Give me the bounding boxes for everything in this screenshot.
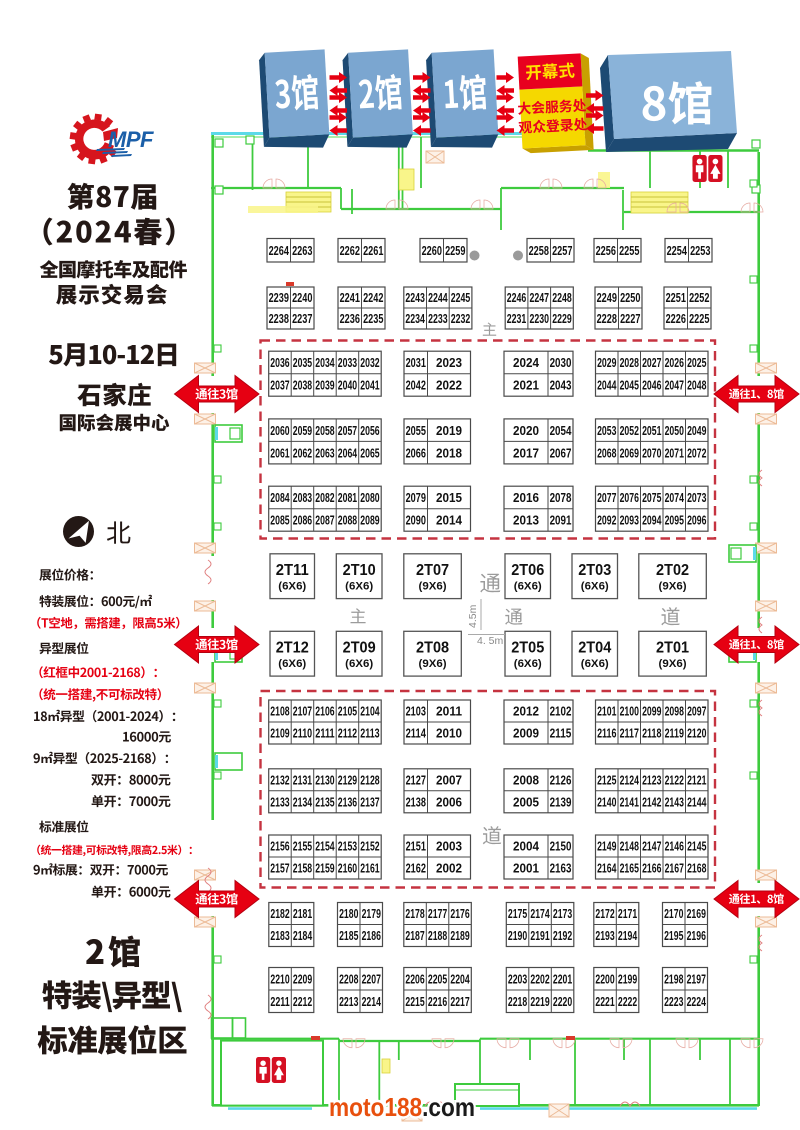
svg-text:2046: 2046: [642, 378, 661, 393]
svg-text:2025: 2025: [687, 355, 706, 370]
svg-text:2136: 2136: [338, 794, 357, 809]
svg-text:2057: 2057: [338, 423, 357, 438]
svg-text:2T01: 2T01: [656, 639, 689, 656]
svg-text:2163: 2163: [550, 861, 572, 876]
svg-text:2012: 2012: [513, 704, 539, 719]
svg-text:2139: 2139: [550, 794, 572, 809]
svg-text:2067: 2067: [550, 445, 572, 460]
svg-text:2179: 2179: [362, 906, 381, 921]
svg-text:2189: 2189: [450, 928, 469, 943]
svg-text:2190: 2190: [508, 928, 527, 943]
svg-text:2051: 2051: [642, 423, 661, 438]
svg-text:2132: 2132: [270, 772, 289, 787]
svg-text:2214: 2214: [362, 994, 382, 1009]
svg-text:2047: 2047: [665, 378, 684, 393]
svg-text:2027: 2027: [642, 355, 661, 370]
svg-text:2019: 2019: [436, 423, 462, 438]
svg-text:2213: 2213: [339, 994, 358, 1009]
svg-text:2261: 2261: [363, 243, 383, 258]
svg-text:2154: 2154: [315, 839, 335, 854]
svg-text:2253: 2253: [690, 243, 710, 258]
svg-text:2184: 2184: [293, 928, 313, 943]
svg-text:2076: 2076: [620, 490, 639, 505]
svg-text:2020: 2020: [513, 423, 539, 438]
svg-text:2106: 2106: [315, 704, 334, 719]
svg-text:2172: 2172: [595, 906, 614, 921]
svg-text:2185: 2185: [339, 928, 358, 943]
svg-text:2165: 2165: [620, 861, 639, 876]
svg-text:2181: 2181: [293, 906, 312, 921]
svg-text:2209: 2209: [293, 971, 312, 986]
svg-text:(6X6): (6X6): [278, 580, 306, 592]
svg-text:2159: 2159: [315, 861, 334, 876]
svg-text:2029: 2029: [597, 355, 616, 370]
svg-text:2237: 2237: [292, 311, 312, 326]
svg-text:2236: 2236: [340, 311, 360, 326]
svg-text:2238: 2238: [269, 311, 289, 326]
svg-text:2170: 2170: [664, 906, 683, 921]
svg-text:2004: 2004: [513, 839, 540, 854]
svg-text:2182: 2182: [270, 906, 289, 921]
svg-text:2088: 2088: [338, 513, 357, 528]
svg-text:2065: 2065: [360, 445, 379, 460]
svg-text:2131: 2131: [293, 772, 312, 787]
svg-text:2198: 2198: [664, 971, 683, 986]
svg-text:2224: 2224: [687, 994, 707, 1009]
svg-text:2194: 2194: [618, 928, 638, 943]
svg-text:2112: 2112: [338, 726, 357, 741]
svg-text:(9X6): (9X6): [659, 580, 687, 592]
svg-text:2147: 2147: [642, 839, 661, 854]
svg-text:2031: 2031: [406, 355, 426, 370]
svg-text:2098: 2098: [665, 704, 684, 719]
svg-text:2100: 2100: [620, 704, 639, 719]
svg-text:2059: 2059: [293, 423, 312, 438]
svg-text:2251: 2251: [666, 290, 686, 305]
svg-text:2114: 2114: [406, 726, 427, 741]
svg-text:2215: 2215: [405, 994, 424, 1009]
svg-text:2119: 2119: [665, 726, 684, 741]
svg-text:2105: 2105: [338, 704, 357, 719]
svg-text:2137: 2137: [360, 794, 379, 809]
svg-text:2247: 2247: [530, 290, 550, 305]
svg-text:2042: 2042: [406, 378, 426, 393]
svg-text:2196: 2196: [687, 928, 706, 943]
svg-text:2075: 2075: [642, 490, 661, 505]
svg-text:2063: 2063: [315, 445, 334, 460]
svg-text:2038: 2038: [293, 378, 312, 393]
svg-text:2034: 2034: [315, 355, 335, 370]
svg-text:2064: 2064: [338, 445, 358, 460]
svg-text:(6X6): (6X6): [345, 580, 373, 592]
svg-text:2094: 2094: [642, 513, 662, 528]
svg-text:2086: 2086: [293, 513, 312, 528]
svg-text:2157: 2157: [270, 861, 289, 876]
svg-text:2053: 2053: [597, 423, 616, 438]
svg-text:2011: 2011: [436, 704, 462, 719]
svg-text:2143: 2143: [665, 794, 684, 809]
svg-text:2111: 2111: [315, 726, 334, 741]
svg-text:2161: 2161: [360, 861, 379, 876]
svg-text:2264: 2264: [269, 243, 290, 258]
svg-text:2187: 2187: [405, 928, 424, 943]
svg-text:2013: 2013: [513, 513, 539, 528]
svg-text:2135: 2135: [315, 794, 334, 809]
svg-text:2102: 2102: [550, 704, 572, 719]
svg-text:2245: 2245: [451, 290, 471, 305]
svg-text:2263: 2263: [292, 243, 312, 258]
svg-text:2201: 2201: [553, 971, 572, 986]
svg-text:2040: 2040: [338, 378, 357, 393]
svg-text:2001: 2001: [513, 861, 539, 876]
svg-text:2207: 2207: [362, 971, 381, 986]
svg-text:2133: 2133: [270, 794, 289, 809]
svg-text:2256: 2256: [596, 243, 616, 258]
svg-text:2126: 2126: [550, 772, 572, 787]
svg-text:(9X6): (9X6): [659, 658, 687, 670]
svg-text:2087: 2087: [315, 513, 334, 528]
svg-text:2235: 2235: [363, 311, 383, 326]
svg-text:2041: 2041: [360, 378, 379, 393]
svg-text:2227: 2227: [620, 311, 640, 326]
svg-text:2175: 2175: [508, 906, 527, 921]
svg-text:2255: 2255: [619, 243, 639, 258]
svg-text:2050: 2050: [665, 423, 684, 438]
svg-text:2204: 2204: [450, 971, 470, 986]
svg-text:2123: 2123: [642, 772, 661, 787]
svg-text:2090: 2090: [406, 513, 426, 528]
svg-text:2206: 2206: [405, 971, 424, 986]
svg-text:2118: 2118: [642, 726, 661, 741]
svg-text:2068: 2068: [597, 445, 616, 460]
svg-text:2T10: 2T10: [343, 562, 376, 579]
svg-text:2008: 2008: [513, 772, 539, 787]
svg-text:2151: 2151: [406, 839, 426, 854]
svg-text:2200: 2200: [595, 971, 614, 986]
svg-text:2216: 2216: [428, 994, 447, 1009]
svg-text:2162: 2162: [406, 861, 426, 876]
svg-text:2120: 2120: [687, 726, 706, 741]
svg-text:2142: 2142: [642, 794, 661, 809]
svg-text:2022: 2022: [436, 378, 462, 393]
svg-text:MPF: MPF: [108, 127, 154, 152]
svg-text:2246: 2246: [507, 290, 527, 305]
svg-text:2073: 2073: [687, 490, 706, 505]
svg-text:2228: 2228: [597, 311, 617, 326]
svg-text:2158: 2158: [293, 861, 312, 876]
svg-text:2010: 2010: [436, 726, 462, 741]
svg-text:2097: 2097: [687, 704, 706, 719]
svg-text:2259: 2259: [445, 243, 465, 258]
svg-text:2128: 2128: [360, 772, 379, 787]
svg-text:2155: 2155: [293, 839, 312, 854]
svg-text:2222: 2222: [618, 994, 637, 1009]
svg-text:2037: 2037: [270, 378, 289, 393]
svg-text:(9X6): (9X6): [419, 580, 447, 592]
svg-text:2262: 2262: [340, 243, 360, 258]
svg-text:2T08: 2T08: [416, 639, 449, 656]
svg-text:2109: 2109: [270, 726, 289, 741]
svg-text:(6X6): (6X6): [278, 658, 306, 670]
svg-text:2056: 2056: [360, 423, 379, 438]
svg-text:2152: 2152: [360, 839, 379, 854]
svg-text:2069: 2069: [620, 445, 639, 460]
svg-text:2083: 2083: [293, 490, 312, 505]
svg-text:2205: 2205: [428, 971, 447, 986]
svg-text:2178: 2178: [405, 906, 424, 921]
svg-text:2169: 2169: [687, 906, 706, 921]
svg-text:2146: 2146: [665, 839, 684, 854]
svg-text:2177: 2177: [428, 906, 447, 921]
svg-text:2234: 2234: [405, 311, 425, 326]
svg-text:2230: 2230: [530, 311, 550, 326]
svg-text:2052: 2052: [620, 423, 639, 438]
svg-text:2049: 2049: [687, 423, 706, 438]
svg-text:2171: 2171: [618, 906, 637, 921]
svg-text:2009: 2009: [513, 726, 539, 741]
svg-text:2002: 2002: [436, 861, 462, 876]
svg-text:2243: 2243: [405, 290, 425, 305]
svg-text:2244: 2244: [428, 290, 448, 305]
svg-text:2125: 2125: [597, 772, 616, 787]
svg-text:2134: 2134: [293, 794, 313, 809]
svg-text:2208: 2208: [339, 971, 358, 986]
svg-text:2249: 2249: [597, 290, 617, 305]
svg-text:2028: 2028: [620, 355, 639, 370]
svg-text:2014: 2014: [436, 513, 463, 528]
svg-text:2024: 2024: [513, 355, 540, 370]
svg-text:2084: 2084: [270, 490, 290, 505]
svg-text:2174: 2174: [530, 906, 550, 921]
svg-text:2223: 2223: [664, 994, 683, 1009]
svg-text:2085: 2085: [270, 513, 289, 528]
svg-text:2032: 2032: [360, 355, 379, 370]
svg-text:2016: 2016: [513, 490, 539, 505]
svg-text:2166: 2166: [642, 861, 661, 876]
svg-text:2129: 2129: [338, 772, 357, 787]
svg-text:2033: 2033: [338, 355, 357, 370]
svg-text:2248: 2248: [552, 290, 572, 305]
svg-text:2225: 2225: [689, 311, 709, 326]
svg-text:2186: 2186: [362, 928, 381, 943]
svg-text:2082: 2082: [315, 490, 334, 505]
svg-text:2108: 2108: [270, 704, 289, 719]
svg-text:2099: 2099: [642, 704, 661, 719]
svg-text:2203: 2203: [508, 971, 527, 986]
svg-text:2239: 2239: [269, 290, 289, 305]
svg-text:2095: 2095: [665, 513, 684, 528]
svg-text:2197: 2197: [687, 971, 706, 986]
svg-text:2093: 2093: [620, 513, 639, 528]
svg-text:2195: 2195: [664, 928, 683, 943]
svg-text:2T07: 2T07: [416, 562, 449, 579]
svg-text:2218: 2218: [508, 994, 527, 1009]
svg-text:2007: 2007: [436, 772, 462, 787]
svg-text:2T03: 2T03: [578, 562, 611, 579]
svg-text:2231: 2231: [507, 311, 527, 326]
svg-text:2116: 2116: [597, 726, 616, 741]
svg-text:2T02: 2T02: [656, 562, 689, 579]
svg-text:2168: 2168: [687, 861, 706, 876]
svg-text:2121: 2121: [687, 772, 706, 787]
svg-text:2035: 2035: [293, 355, 312, 370]
svg-text:2021: 2021: [513, 378, 539, 393]
svg-text:2140: 2140: [597, 794, 616, 809]
svg-text:4. 5m: 4. 5m: [477, 635, 504, 647]
svg-text:2260: 2260: [422, 243, 442, 258]
svg-text:2149: 2149: [597, 839, 616, 854]
svg-text:2229: 2229: [552, 311, 572, 326]
svg-text:2113: 2113: [360, 726, 379, 741]
svg-text:2006: 2006: [436, 794, 462, 809]
svg-text:2167: 2167: [665, 861, 684, 876]
svg-text:2210: 2210: [270, 971, 289, 986]
svg-text:2T11: 2T11: [276, 562, 309, 579]
svg-text:2060: 2060: [270, 423, 289, 438]
svg-text:2221: 2221: [595, 994, 614, 1009]
svg-text:2074: 2074: [665, 490, 685, 505]
svg-text:2156: 2156: [270, 839, 289, 854]
svg-text:2070: 2070: [642, 445, 661, 460]
svg-text:2188: 2188: [428, 928, 447, 943]
svg-text:2015: 2015: [436, 490, 462, 505]
svg-text:2141: 2141: [620, 794, 639, 809]
svg-text:2219: 2219: [530, 994, 549, 1009]
svg-text:2T09: 2T09: [343, 639, 376, 656]
svg-text:2039: 2039: [315, 378, 334, 393]
svg-text:(9X6): (9X6): [419, 658, 447, 670]
svg-text:2242: 2242: [363, 290, 383, 305]
svg-text:2252: 2252: [689, 290, 709, 305]
svg-text:2003: 2003: [436, 839, 462, 854]
svg-text:2193: 2193: [595, 928, 614, 943]
svg-text:2023: 2023: [436, 355, 462, 370]
svg-text:2258: 2258: [529, 243, 549, 258]
svg-text:2081: 2081: [338, 490, 357, 505]
svg-text:2211: 2211: [270, 994, 289, 1009]
svg-text:(6X6): (6X6): [514, 658, 542, 670]
svg-text:2115: 2115: [550, 726, 572, 741]
svg-text:2107: 2107: [293, 704, 312, 719]
svg-text:2T12: 2T12: [276, 639, 309, 656]
svg-text:2173: 2173: [553, 906, 572, 921]
svg-text:2036: 2036: [270, 355, 289, 370]
svg-text:2212: 2212: [293, 994, 312, 1009]
svg-text:2077: 2077: [597, 490, 616, 505]
svg-text:2250: 2250: [620, 290, 640, 305]
svg-text:2164: 2164: [597, 861, 617, 876]
svg-text:2150: 2150: [550, 839, 572, 854]
svg-text:2096: 2096: [687, 513, 706, 528]
svg-text:2071: 2071: [665, 445, 684, 460]
svg-text:2078: 2078: [550, 490, 572, 505]
svg-text:2232: 2232: [451, 311, 471, 326]
svg-text:2226: 2226: [666, 311, 686, 326]
svg-text:2130: 2130: [315, 772, 334, 787]
svg-text:2103: 2103: [406, 704, 426, 719]
svg-text:moto188.com: moto188.com: [329, 1092, 475, 1122]
svg-text:2017: 2017: [513, 445, 539, 460]
svg-text:2180: 2180: [339, 906, 358, 921]
svg-text:2055: 2055: [406, 423, 426, 438]
svg-text:2127: 2127: [406, 772, 426, 787]
svg-text:2058: 2058: [315, 423, 334, 438]
svg-text:2079: 2079: [406, 490, 426, 505]
svg-text:(6X6): (6X6): [345, 658, 373, 670]
svg-text:2092: 2092: [597, 513, 616, 528]
svg-text:(6X6): (6X6): [581, 580, 609, 592]
svg-text:2160: 2160: [338, 861, 357, 876]
svg-text:2T06: 2T06: [511, 562, 544, 579]
svg-text:(6X6): (6X6): [514, 580, 542, 592]
svg-text:2061: 2061: [270, 445, 289, 460]
svg-text:2043: 2043: [550, 378, 572, 393]
svg-text:2233: 2233: [428, 311, 448, 326]
svg-text:2044: 2044: [597, 378, 617, 393]
svg-text:2124: 2124: [620, 772, 640, 787]
svg-text:2217: 2217: [450, 994, 469, 1009]
svg-text:2062: 2062: [293, 445, 312, 460]
svg-text:2241: 2241: [340, 290, 360, 305]
svg-text:2030: 2030: [550, 355, 572, 370]
svg-text:2176: 2176: [450, 906, 469, 921]
svg-text:2153: 2153: [338, 839, 357, 854]
svg-text:2148: 2148: [620, 839, 639, 854]
svg-text:2145: 2145: [687, 839, 706, 854]
svg-text:2T05: 2T05: [511, 639, 544, 656]
svg-text:2018: 2018: [436, 445, 462, 460]
svg-text:2091: 2091: [550, 513, 572, 528]
svg-text:2257: 2257: [552, 243, 572, 258]
svg-text:2202: 2202: [530, 971, 549, 986]
svg-text:2080: 2080: [360, 490, 379, 505]
svg-text:2066: 2066: [406, 445, 426, 460]
svg-text:(6X6): (6X6): [581, 658, 609, 670]
svg-text:2104: 2104: [360, 704, 380, 719]
svg-text:2026: 2026: [665, 355, 684, 370]
svg-text:2005: 2005: [513, 794, 539, 809]
svg-text:2T04: 2T04: [578, 639, 611, 656]
svg-text:2192: 2192: [553, 928, 572, 943]
svg-text:2048: 2048: [687, 378, 706, 393]
svg-text:2045: 2045: [620, 378, 639, 393]
svg-text:4.5m: 4.5m: [467, 604, 479, 628]
svg-text:2183: 2183: [270, 928, 289, 943]
svg-text:2240: 2240: [292, 290, 312, 305]
svg-text:2110: 2110: [293, 726, 312, 741]
svg-text:2117: 2117: [620, 726, 639, 741]
svg-text:2138: 2138: [406, 794, 426, 809]
svg-text:2072: 2072: [687, 445, 706, 460]
svg-text:2054: 2054: [550, 423, 572, 438]
svg-text:2199: 2199: [618, 971, 637, 986]
svg-text:2101: 2101: [597, 704, 616, 719]
svg-text:2089: 2089: [360, 513, 379, 528]
svg-text:2220: 2220: [553, 994, 572, 1009]
svg-text:2144: 2144: [687, 794, 707, 809]
svg-text:2191: 2191: [530, 928, 549, 943]
svg-text:2254: 2254: [667, 243, 688, 258]
svg-text:2122: 2122: [665, 772, 684, 787]
